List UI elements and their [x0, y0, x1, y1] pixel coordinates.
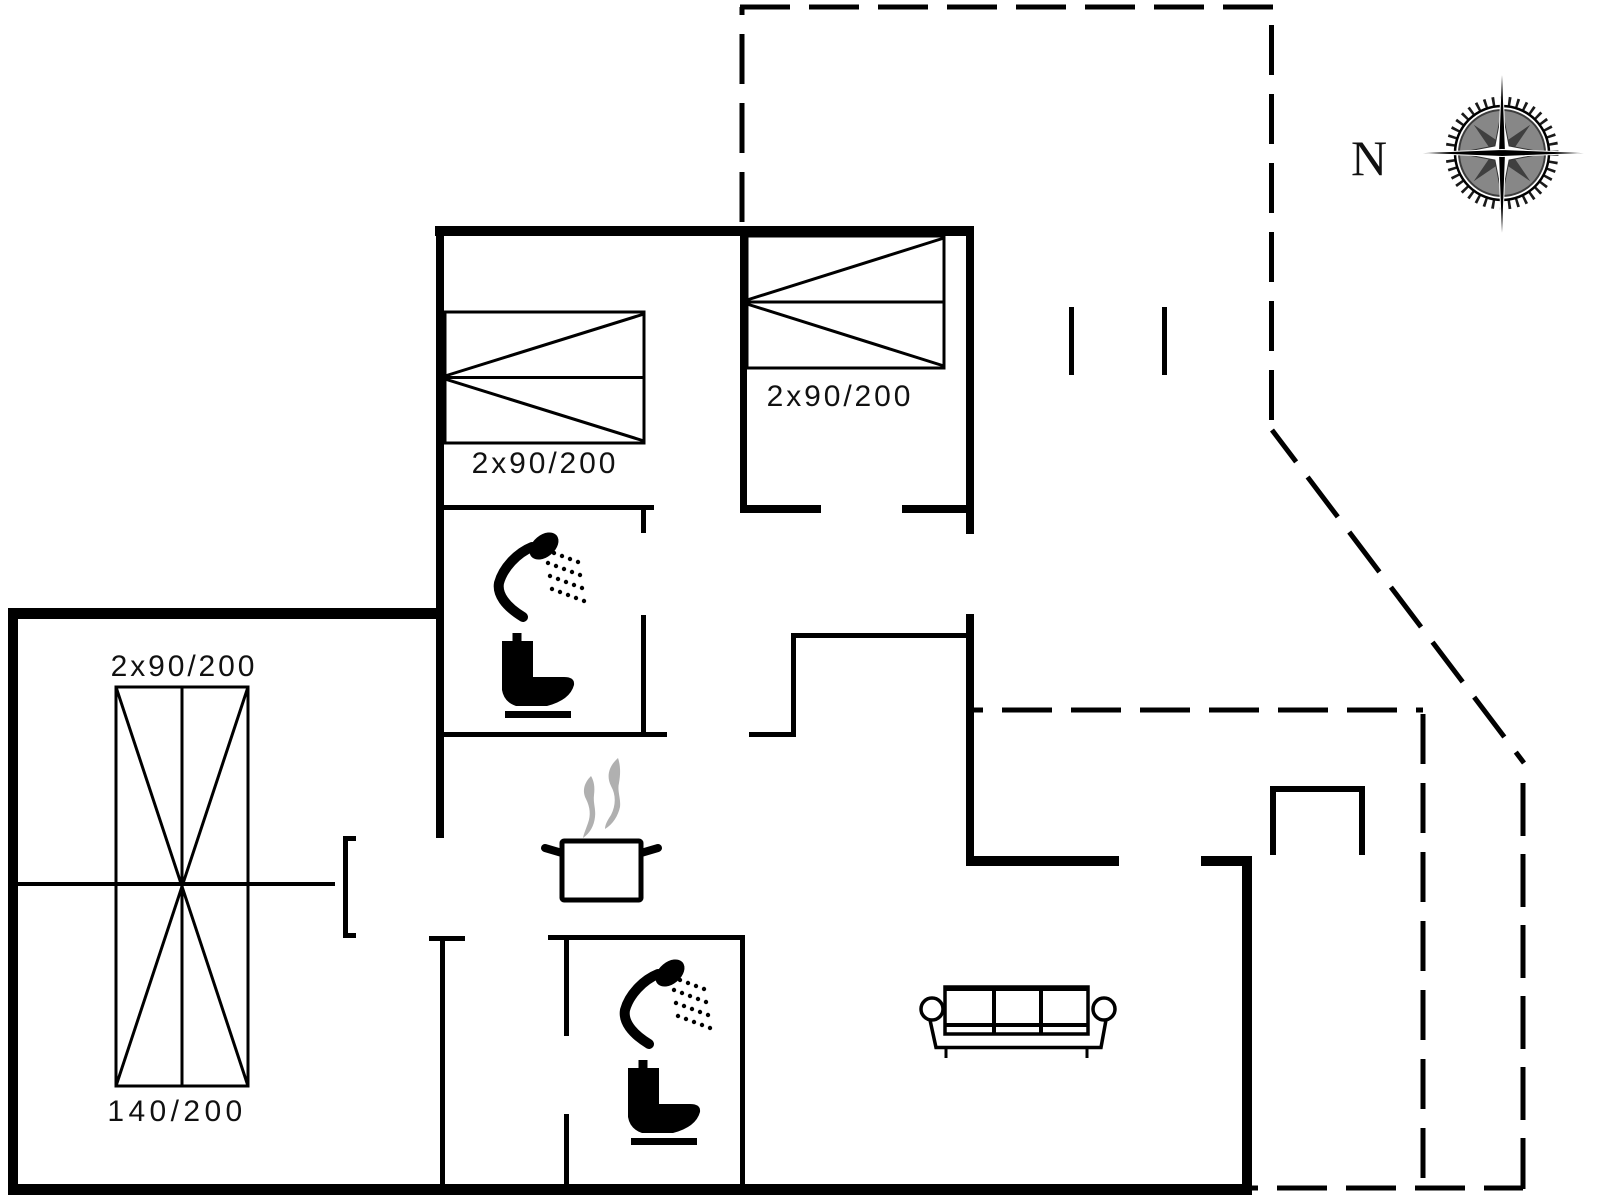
svg-text:N: N: [1351, 130, 1387, 186]
svg-text:140/200: 140/200: [107, 1095, 246, 1128]
svg-text:2x90/200: 2x90/200: [767, 380, 914, 413]
svg-text:2x90/200: 2x90/200: [111, 650, 258, 683]
svg-text:2x90/200: 2x90/200: [472, 447, 619, 480]
